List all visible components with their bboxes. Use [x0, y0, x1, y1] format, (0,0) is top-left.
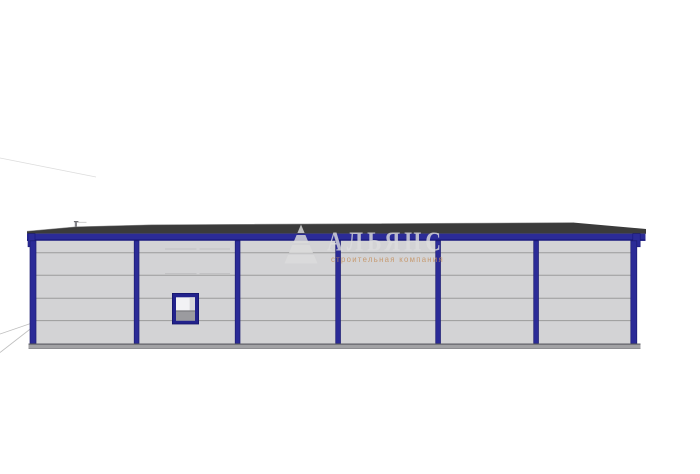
window-sill-edge — [176, 310, 195, 311]
pyramid-logo-tier-3 — [289, 245, 313, 253]
plinth-bottom-edge — [29, 348, 641, 349]
column — [534, 241, 539, 344]
plinth-top-edge — [29, 344, 641, 345]
plinth — [29, 344, 641, 350]
pyramid-logo-tier-4 — [284, 255, 317, 264]
building-elevation: АЛЬЯНС строительная компания — [0, 0, 700, 474]
roof-vent-guy-line — [77, 222, 87, 223]
column — [134, 241, 139, 344]
artifact-line-bottom-left-1 — [0, 323, 34, 335]
artifact-line-bottom-left-2 — [0, 327, 34, 353]
watermark-tagline: строительная компания — [331, 254, 444, 264]
window-sill — [176, 312, 195, 321]
corner-column-right — [631, 241, 637, 344]
window-glass-shade — [190, 297, 195, 310]
artifact-line-top-left — [0, 158, 96, 177]
corner-column-left — [30, 241, 36, 344]
window — [172, 293, 198, 324]
render-canvas: АЛЬЯНС строительная компания — [0, 0, 700, 474]
watermark-company-name: АЛЬЯНС — [327, 227, 445, 257]
column — [235, 241, 240, 344]
